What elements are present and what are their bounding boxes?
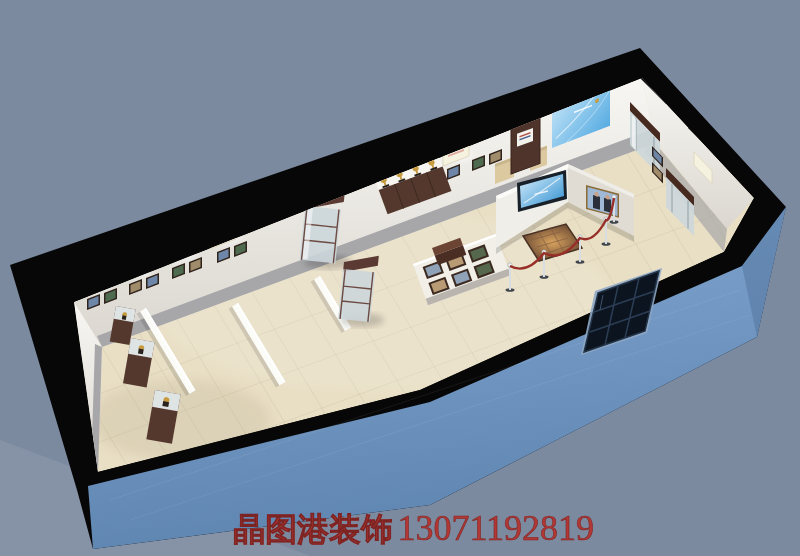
- exhibition-hall-render: 晶图港装饰 13071192819: [0, 0, 800, 556]
- watermark-phone: 13071192819: [397, 508, 594, 548]
- watermark-brand: 晶图港装饰: [233, 510, 393, 548]
- screenshot-root: 晶图港装饰 13071192819: [0, 0, 800, 556]
- watermark-text: 晶图港装饰 13071192819: [233, 508, 594, 548]
